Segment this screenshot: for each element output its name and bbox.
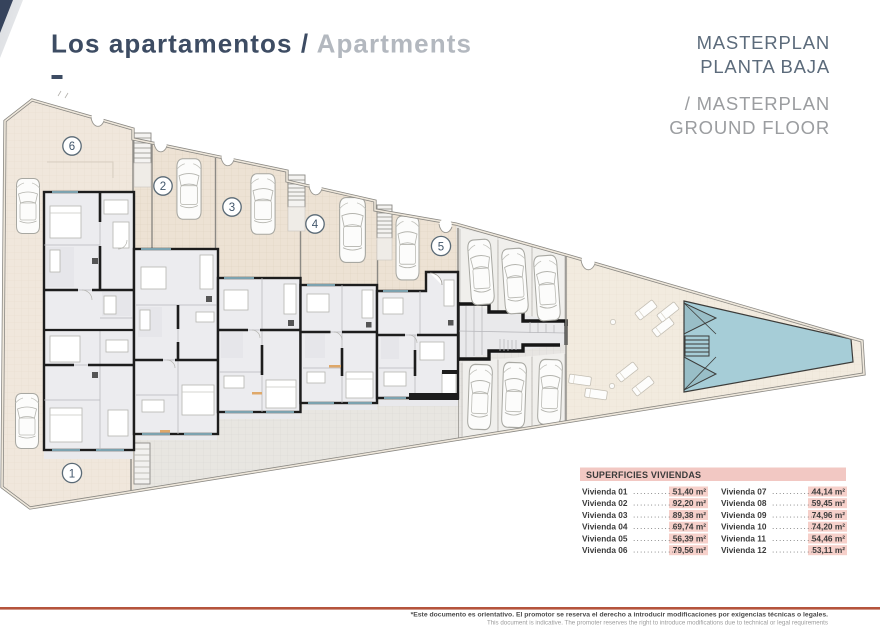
svg-text:..............: .............. — [633, 521, 682, 531]
svg-text:Vivienda 06: Vivienda 06 — [582, 545, 628, 555]
svg-text:/ MASTERPLAN: / MASTERPLAN — [685, 93, 830, 114]
svg-text:Vivienda 01: Vivienda 01 — [582, 487, 628, 497]
svg-text:..............: .............. — [772, 486, 821, 496]
svg-text:Vivienda 05: Vivienda 05 — [582, 534, 628, 544]
svg-text:Vivienda 10: Vivienda 10 — [721, 522, 767, 532]
svg-text:4: 4 — [312, 219, 319, 231]
svg-text:SUPERFICIES VIVIENDAS: SUPERFICIES VIVIENDAS — [586, 470, 701, 480]
svg-text:1: 1 — [69, 468, 75, 480]
svg-text:6: 6 — [69, 141, 75, 153]
svg-text:MASTERPLAN: MASTERPLAN — [697, 32, 830, 53]
svg-text:..............: .............. — [633, 533, 682, 543]
svg-text:Vivienda 02: Vivienda 02 — [582, 498, 628, 508]
svg-text:Vivienda 03: Vivienda 03 — [582, 510, 628, 520]
svg-text:This document is indicative. T: This document is indicative. The promote… — [487, 620, 828, 627]
svg-text:Vivienda 12: Vivienda 12 — [721, 545, 767, 555]
svg-text:Vivienda 04: Vivienda 04 — [582, 522, 628, 532]
svg-text:..............: .............. — [772, 498, 821, 508]
svg-text:..............: .............. — [633, 510, 682, 520]
svg-text:Vivienda 07: Vivienda 07 — [721, 487, 767, 497]
svg-text:2: 2 — [160, 181, 166, 193]
svg-text:Vivienda 11: Vivienda 11 — [721, 534, 766, 544]
svg-text:5: 5 — [438, 241, 444, 253]
svg-text:GROUND FLOOR: GROUND FLOOR — [669, 117, 830, 138]
svg-text:3: 3 — [229, 202, 235, 214]
svg-text:..............: .............. — [633, 498, 682, 508]
svg-text:PLANTA BAJA: PLANTA BAJA — [700, 56, 830, 77]
svg-text:..............: .............. — [633, 545, 682, 555]
svg-text:..............: .............. — [772, 510, 821, 520]
svg-text:..............: .............. — [772, 533, 821, 543]
svg-text:Vivienda 08: Vivienda 08 — [721, 498, 767, 508]
svg-text:..............: .............. — [633, 486, 682, 496]
svg-text:Los apartamentos / Apartments: Los apartamentos / Apartments — [51, 29, 472, 59]
svg-text:..............: .............. — [772, 521, 821, 531]
svg-text:*Este documento es orientativo: *Este documento es orientativo. El promo… — [411, 612, 829, 619]
svg-text:..............: .............. — [772, 545, 821, 555]
svg-text:Vivienda 09: Vivienda 09 — [721, 510, 767, 520]
